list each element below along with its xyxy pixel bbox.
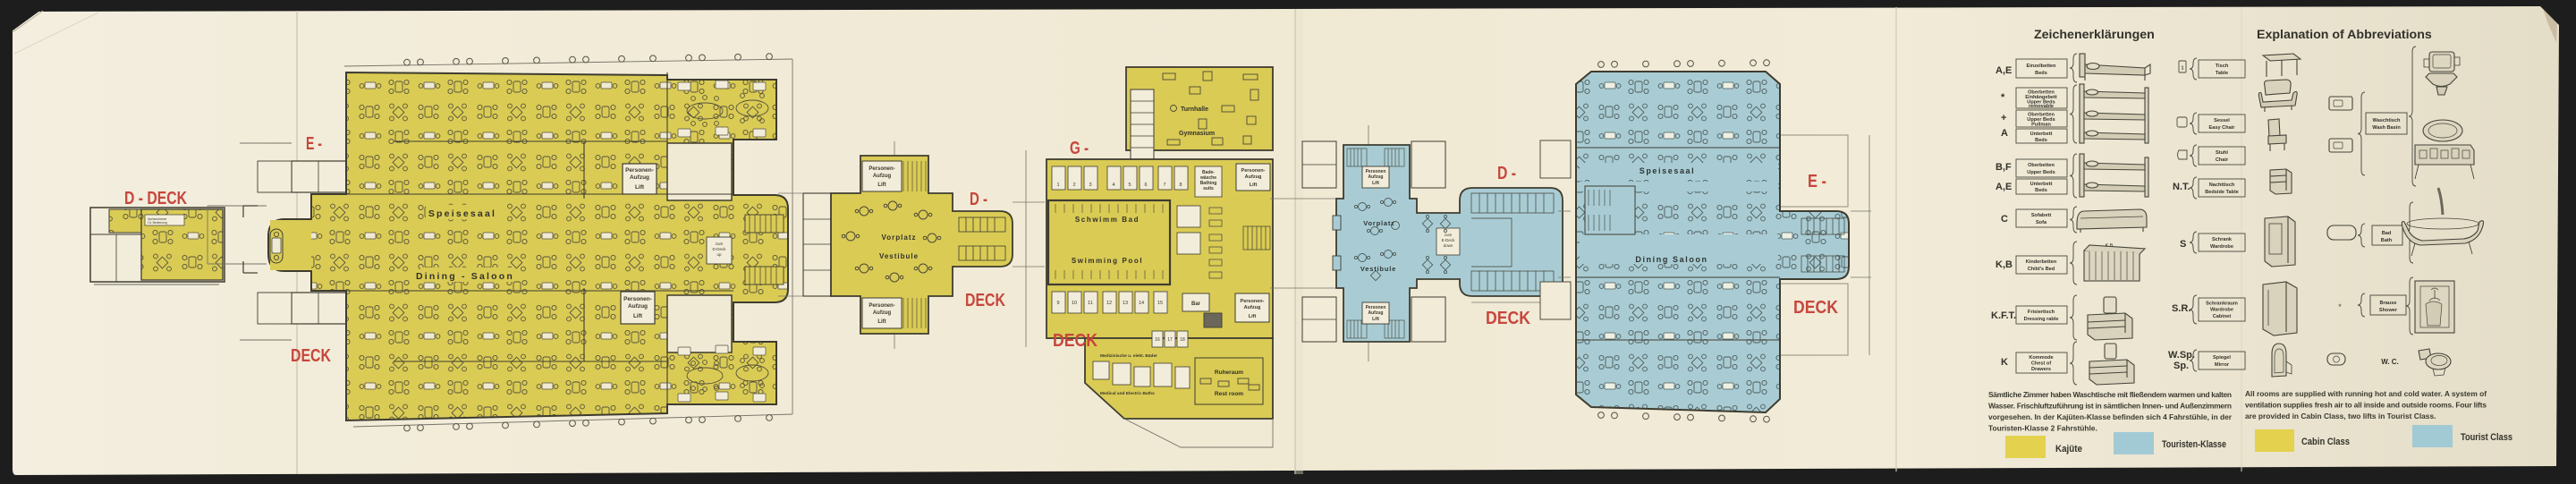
svg-text:Child's Bed: Child's Bed	[2028, 267, 2055, 272]
svg-text:Medical and Electric Baths: Medical and Electric Baths	[1100, 391, 1155, 396]
svg-text:f.d. Bedienung: f.d. Bedienung	[148, 221, 167, 225]
svg-text:Beds: Beds	[2035, 138, 2047, 143]
svg-text:up: up	[716, 252, 722, 257]
svg-text:Upper Beds: Upper Beds	[2027, 170, 2055, 175]
svg-text:12: 12	[1106, 301, 1112, 306]
svg-text:D-Deck: D-Deck	[712, 247, 726, 251]
svg-text:Unterbett: Unterbett	[2030, 132, 2053, 137]
svg-text:Rest room: Rest room	[1215, 391, 1243, 397]
svg-text:16: 16	[1155, 337, 1160, 343]
svg-text:Cabin Class: Cabin Class	[2301, 437, 2350, 447]
svg-text:14: 14	[1139, 301, 1144, 306]
svg-text:17: 17	[1167, 337, 1173, 343]
svg-text:Swimming Pool: Swimming Pool	[1072, 257, 1143, 265]
svg-text:A: A	[2001, 128, 2008, 139]
svg-text:Sämtliche Zimmer haben Waschti: Sämtliche Zimmer haben Waschtische mit f…	[1988, 390, 2232, 399]
svg-text:Schwimm Bad: Schwimm Bad	[1075, 216, 1140, 224]
svg-text:Sofa: Sofa	[2036, 220, 2047, 225]
svg-text:Vorplatz: Vorplatz	[882, 234, 917, 242]
svg-text:Kajüte: Kajüte	[2055, 444, 2082, 454]
svg-text:Wasser. Frischluftzuführung is: Wasser. Frischluftzuführung ist in sämtl…	[1988, 402, 2232, 411]
svg-text:E -: E -	[306, 134, 322, 154]
svg-text:Nachttisch: Nachttisch	[2209, 183, 2235, 188]
svg-text:Aufzug: Aufzug	[873, 310, 892, 316]
svg-text:Vorplatz: Vorplatz	[1363, 219, 1394, 227]
svg-text:vorgesehen. In der Kajüten-Kla: vorgesehen. In der Kajüten-Klasse befind…	[1988, 412, 2233, 421]
svg-text:Tourist Class: Tourist Class	[2461, 432, 2512, 443]
svg-text:down: down	[1444, 243, 1453, 248]
svg-text:Personen-: Personen-	[1241, 299, 1265, 304]
svg-text:Lift: Lift	[633, 313, 643, 319]
svg-text:Personen-: Personen-	[625, 167, 654, 174]
svg-text:S: S	[2180, 239, 2186, 250]
svg-text:Dressing rable: Dressing rable	[2024, 317, 2059, 322]
svg-text:Cabinet: Cabinet	[2213, 314, 2232, 319]
svg-text:*: *	[2338, 302, 2342, 311]
svg-text:5: 5	[1128, 183, 1131, 188]
svg-text:Bad: Bad	[2382, 231, 2392, 236]
svg-text:Frisiertisch: Frisiertisch	[2028, 310, 2055, 315]
svg-text:K.F.T.: K.F.T.	[1991, 310, 2016, 321]
svg-text:Bedside Table: Bedside Table	[2205, 190, 2239, 195]
svg-text:*: *	[2001, 92, 2005, 103]
svg-text:Dining Saloon: Dining Saloon	[1635, 255, 1707, 264]
svg-text:Aufzug: Aufzug	[630, 174, 649, 181]
svg-text:Brause: Brause	[2380, 301, 2397, 306]
svg-text:Kinderbetten: Kinderbetten	[2026, 259, 2057, 265]
svg-text:DECK: DECK	[1053, 331, 1097, 351]
svg-text:2: 2	[1072, 183, 1075, 188]
svg-text:6: 6	[1144, 183, 1147, 188]
svg-text:Bath: Bath	[2381, 238, 2393, 243]
svg-text:Personen-: Personen-	[1241, 168, 1266, 174]
svg-text:Aufzug: Aufzug	[628, 303, 648, 310]
svg-text:Lift: Lift	[877, 319, 885, 325]
svg-text:E-Deck: E-Deck	[1442, 238, 1456, 242]
svg-text:Lift: Lift	[1249, 314, 1257, 319]
svg-text:zum: zum	[716, 242, 724, 246]
svg-text:Medizinische u. elekt. Bäder: Medizinische u. elekt. Bäder	[1100, 353, 1157, 359]
svg-text:Lift: Lift	[1372, 181, 1379, 186]
svg-text:Lift: Lift	[635, 184, 645, 191]
svg-text:Speisesaal: Speisesaal	[1640, 166, 1696, 175]
svg-text:Zeichenerklärungen: Zeichenerklärungen	[2034, 28, 2155, 42]
svg-text:Chest of: Chest of	[2031, 361, 2052, 367]
svg-text:+: +	[2001, 113, 2006, 123]
svg-text:N.T.: N.T.	[2173, 182, 2190, 192]
svg-text:Turnhalle: Turnhalle	[1181, 106, 1208, 113]
svg-text:4: 4	[1112, 183, 1114, 188]
svg-text:G -: G -	[1070, 139, 1089, 158]
svg-text:Aufzug: Aufzug	[1368, 174, 1384, 180]
svg-text:Drawers: Drawers	[2031, 367, 2051, 372]
svg-text:Personen-: Personen-	[623, 296, 652, 302]
svg-text:DECK: DECK	[291, 346, 331, 366]
svg-text:Easy Chair: Easy Chair	[2209, 125, 2236, 131]
svg-text:Touristen-Klasse: Touristen-Klasse	[2162, 439, 2226, 450]
svg-text:Chair: Chair	[2216, 157, 2229, 163]
svg-text:Mirror: Mirror	[2215, 362, 2230, 368]
svg-text:removable: removable	[2029, 104, 2054, 109]
svg-text:D - DECK: D - DECK	[124, 189, 187, 208]
svg-text:C: C	[2001, 214, 2008, 225]
svg-text:Wash Basin: Wash Basin	[2372, 125, 2401, 131]
svg-text:Pullman: Pullman	[2031, 123, 2051, 128]
svg-text:Lift: Lift	[1372, 317, 1379, 322]
svg-text:are provided in Cabin Class, t: are provided in Cabin Class, two lifts i…	[2245, 412, 2436, 420]
svg-text:Aufzug: Aufzug	[1245, 174, 1262, 180]
svg-text:Unterbett: Unterbett	[2030, 182, 2053, 187]
svg-text:9: 9	[1056, 301, 1059, 306]
svg-text:Sp.: Sp.	[2173, 361, 2189, 371]
svg-text:Speisesaal: Speisesaal	[428, 208, 496, 219]
svg-text:K: K	[2001, 357, 2008, 368]
svg-text:E -: E -	[1808, 172, 1826, 191]
svg-text:10: 10	[1072, 301, 1077, 306]
svg-text:Ruheraum: Ruheraum	[1215, 369, 1243, 376]
svg-text:Table: Table	[2216, 71, 2228, 76]
svg-text:W. C.: W. C.	[2381, 358, 2399, 366]
svg-text:Bar: Bar	[1191, 301, 1201, 307]
svg-text:Schrank: Schrank	[2212, 237, 2233, 242]
svg-text:D -: D -	[970, 190, 987, 209]
svg-text:Dining - Saloon: Dining - Saloon	[416, 271, 514, 282]
svg-text:Shower: Shower	[2379, 308, 2398, 313]
svg-text:W.Sp.: W.Sp.	[2168, 350, 2195, 361]
svg-text:Lift: Lift	[877, 183, 885, 188]
svg-text:1: 1	[2182, 66, 2184, 72]
svg-text:K,B: K,B	[1996, 259, 2012, 270]
svg-text:Personen-: Personen-	[869, 166, 894, 172]
svg-text:Tisch: Tisch	[2216, 64, 2229, 69]
svg-text:Spiegel: Spiegel	[2213, 355, 2231, 361]
svg-text:Vestibule: Vestibule	[879, 252, 919, 260]
svg-text:18: 18	[1180, 337, 1185, 343]
svg-text:15: 15	[1157, 301, 1163, 306]
svg-text:Vestibule: Vestibule	[1360, 265, 1396, 273]
svg-text:Sessel: Sessel	[2214, 118, 2230, 123]
svg-text:Wardrobe: Wardrobe	[2210, 244, 2233, 250]
svg-text:Sofabett: Sofabett	[2031, 213, 2052, 218]
svg-text:8: 8	[1179, 183, 1182, 188]
svg-text:Schrankraum: Schrankraum	[2206, 301, 2238, 307]
svg-text:DECK: DECK	[1793, 298, 1838, 318]
svg-text:Kommode: Kommode	[2029, 355, 2053, 361]
svg-text:Beds: Beds	[2035, 188, 2047, 193]
svg-text:Touristen-Klasse 2 Fahrstühle.: Touristen-Klasse 2 Fahrstühle.	[1988, 424, 2097, 433]
svg-text:Wardrobe: Wardrobe	[2210, 308, 2233, 313]
svg-text:3: 3	[1089, 183, 1091, 188]
svg-text:DECK: DECK	[1486, 309, 1530, 328]
svg-text:Explanation of Abbreviations: Explanation of Abbreviations	[2257, 28, 2432, 42]
svg-text:Oberbetten: Oberbetten	[2028, 163, 2055, 168]
svg-text:13: 13	[1123, 301, 1128, 306]
svg-text:Gymnasium: Gymnasium	[1179, 131, 1215, 137]
svg-text:Aufzug: Aufzug	[1368, 310, 1384, 316]
svg-text:11: 11	[1088, 301, 1093, 306]
svg-text:Aufzug: Aufzug	[873, 174, 892, 179]
svg-text:Beds: Beds	[2035, 71, 2047, 76]
svg-text:Einzelbetten: Einzelbetten	[2027, 64, 2057, 69]
svg-text:S.R.: S.R.	[2172, 303, 2190, 314]
svg-text:Stuhl: Stuhl	[2216, 150, 2228, 156]
svg-text:Lift: Lift	[1250, 183, 1258, 188]
svg-text:D -: D -	[1497, 164, 1516, 183]
svg-text:Aufzug: Aufzug	[1244, 305, 1261, 310]
svg-text:zum: zum	[1445, 233, 1453, 237]
svg-text:All rooms are supplied with ru: All rooms are supplied with running hot …	[2245, 389, 2487, 398]
svg-text:ventilation supplies fresh air: ventilation supplies fresh air to all in…	[2245, 401, 2487, 410]
svg-text:1: 1	[1056, 183, 1059, 188]
svg-text:A,E: A,E	[1996, 182, 2012, 192]
svg-text:A,E: A,E	[1996, 65, 2012, 76]
svg-text:suits: suits	[1203, 186, 1214, 191]
svg-text:B,F: B,F	[1996, 162, 2012, 173]
svg-text:7: 7	[1163, 183, 1165, 188]
svg-text:Personen-: Personen-	[869, 303, 894, 309]
svg-text:DECK: DECK	[965, 291, 1005, 310]
svg-text:Waschtisch: Waschtisch	[2373, 118, 2401, 123]
